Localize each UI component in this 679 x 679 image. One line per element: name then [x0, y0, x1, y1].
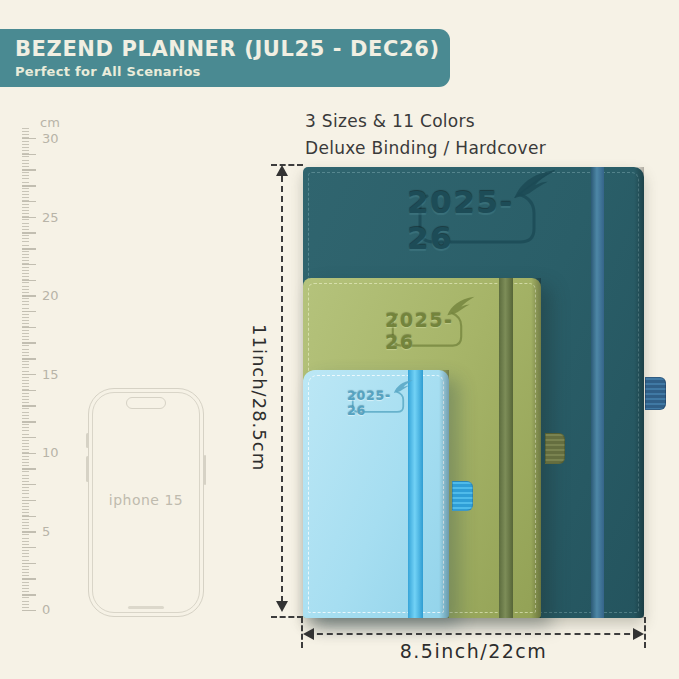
arrow-down-icon [276, 601, 288, 612]
guide-line-bottom [271, 616, 303, 618]
phone-outline: iphone 15 [88, 388, 204, 617]
guide-line-right [644, 617, 646, 648]
ruler-tick-label: 15 [42, 367, 59, 382]
header-subtitle: Perfect for All Scenarios [15, 64, 450, 79]
planner-small: 2025-26 [303, 370, 449, 618]
elastic-band [499, 278, 513, 618]
height-dimension-label: 11inch/28.5cm [249, 324, 270, 471]
page-title: BEZEND PLANNER (JUL25 - DEC26) [15, 36, 450, 62]
width-dimension-label: 8.5inch/22cm [303, 640, 644, 662]
elastic-band [591, 167, 604, 618]
year-logo: 2025-26 [347, 388, 409, 414]
phone-volume-button [86, 456, 89, 482]
year-logo: 2025-26 [407, 185, 547, 247]
elastic-band [408, 370, 423, 618]
phone-power-button [204, 455, 207, 485]
pen-loop [452, 481, 473, 511]
page-edge-shadow [531, 278, 541, 618]
ruler-tick-label: 25 [42, 210, 59, 225]
width-dimension-line [307, 633, 640, 635]
arrow-up-icon [276, 165, 288, 176]
phone-label: iphone 15 [89, 492, 203, 508]
arrow-left-icon [303, 628, 314, 640]
dynamic-island [126, 397, 166, 409]
pen-loop [545, 433, 565, 464]
year-logo: 2025-26 [385, 307, 469, 349]
ruler-major-ticks [22, 138, 36, 612]
page-edge-shadow [439, 370, 449, 618]
product-image: BEZEND PLANNER (JUL25 - DEC26) Perfect f… [0, 0, 679, 679]
ruler-tick-label: 10 [42, 445, 59, 460]
height-dimension-line [281, 176, 283, 602]
phone-mute-button [86, 433, 89, 448]
binding-hardcover-text: Deluxe Binding / Hardcover [305, 135, 546, 162]
pen-loop [645, 377, 666, 410]
intro-text: 3 Sizes & 11 Colors Deluxe Binding / Har… [305, 108, 546, 162]
sizes-colors-text: 3 Sizes & 11 Colors [305, 108, 546, 135]
header-banner: BEZEND PLANNER (JUL25 - DEC26) Perfect f… [0, 29, 450, 87]
ruler-tick-label: 20 [42, 288, 59, 303]
ruler-tick-label: 0 [42, 602, 50, 617]
ruler-tick-label: 5 [42, 524, 50, 539]
planner-year-emboss: 2025-26 [385, 303, 469, 353]
ruler-tick-label: 30 [42, 131, 59, 146]
planner-year-emboss: 2025-26 [347, 384, 409, 418]
arrow-right-icon [633, 628, 644, 640]
planner-year-emboss: 2025-26 [407, 176, 547, 256]
phone-home-indicator [128, 606, 164, 610]
page-edge-shadow [634, 167, 644, 618]
ruler-unit-label: cm [40, 115, 60, 130]
